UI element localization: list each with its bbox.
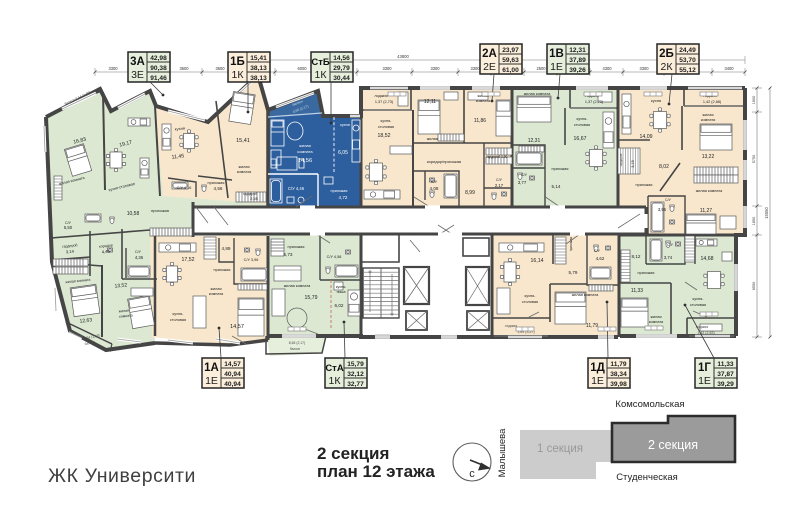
svg-text:12,11: 12,11 (424, 99, 436, 105)
svg-text:1К: 1К (232, 69, 245, 81)
svg-text:с: с (469, 468, 475, 480)
svg-text:гардероб 1,90: гардероб 1,90 (487, 155, 508, 159)
svg-text:12,31: 12,31 (528, 138, 541, 144)
svg-text:4,62: 4,62 (596, 256, 605, 261)
svg-text:комната: комната (701, 118, 716, 122)
svg-text:кухня: кухня (175, 125, 186, 131)
svg-text:8,12: 8,12 (632, 254, 641, 259)
svg-text:11,86: 11,86 (474, 118, 486, 124)
svg-text:жилая: жилая (210, 287, 221, 291)
svg-text:37,89: 37,89 (569, 57, 586, 64)
svg-text:Студенческая: Студенческая (616, 472, 678, 483)
svg-text:32,77: 32,77 (347, 381, 364, 388)
svg-text:комната: комната (649, 320, 664, 324)
svg-text:1,42 (2,68): 1,42 (2,68) (703, 100, 722, 104)
svg-text:С/У 4,46: С/У 4,46 (288, 186, 305, 191)
svg-text:5,14: 5,14 (552, 184, 561, 189)
svg-text:4,89: 4,89 (222, 246, 231, 251)
svg-text:кухня-: кухня- (577, 117, 589, 121)
svg-text:кухня-: кухня- (173, 312, 185, 316)
svg-text:3300: 3300 (470, 66, 480, 71)
svg-text:2К: 2К (661, 61, 674, 73)
svg-text:3600: 3600 (215, 66, 225, 71)
svg-text:38,34: 38,34 (610, 371, 627, 378)
svg-text:91,46: 91,46 (150, 75, 167, 82)
svg-text:1Е: 1Е (591, 375, 604, 387)
svg-text:прихожая: прихожая (552, 167, 569, 171)
svg-text:лоджия: лоджия (374, 94, 387, 98)
svg-text:прихожая: прихожая (569, 237, 573, 251)
svg-text:15550: 15550 (764, 207, 769, 219)
svg-text:23,97: 23,97 (502, 47, 519, 54)
svg-text:прихожая: прихожая (288, 245, 305, 249)
svg-text:3А: 3А (130, 56, 145, 68)
svg-text:8,65 (2,17): 8,65 (2,17) (289, 341, 305, 345)
svg-text:39,29: 39,29 (717, 381, 734, 388)
svg-text:11,27: 11,27 (700, 208, 712, 214)
svg-text:11,33: 11,33 (631, 288, 643, 294)
svg-text:24,49: 24,49 (679, 47, 696, 54)
svg-text:столовая: столовая (522, 300, 538, 304)
svg-text:37,87: 37,87 (717, 371, 734, 378)
svg-text:3300: 3300 (639, 66, 649, 71)
svg-text:39,26: 39,26 (569, 67, 586, 74)
svg-text:прихожая: прихожая (214, 268, 231, 272)
svg-text:1600: 1600 (752, 96, 756, 104)
svg-text:Комсомольская: Комсомольская (615, 399, 684, 410)
svg-text:комната: комната (209, 292, 224, 296)
svg-text:1,37 (2,73): 1,37 (2,73) (585, 100, 604, 104)
svg-text:4,56: 4,56 (214, 186, 223, 191)
svg-text:8,99: 8,99 (465, 190, 475, 196)
svg-text:14,56: 14,56 (333, 55, 350, 62)
svg-text:3,14: 3,14 (66, 249, 75, 255)
svg-text:кухня: кухня (651, 98, 661, 103)
svg-text:жилая: жилая (299, 143, 311, 148)
svg-text:4,36: 4,36 (135, 255, 144, 260)
svg-text:14,09: 14,09 (640, 134, 653, 140)
svg-text:кухня-: кухня- (693, 297, 705, 301)
svg-text:столовая: столовая (378, 125, 394, 129)
svg-text:1А: 1А (204, 362, 219, 374)
svg-text:53,70: 53,70 (679, 57, 696, 64)
svg-text:38,13: 38,13 (250, 75, 267, 82)
svg-text:40,94: 40,94 (224, 371, 241, 378)
svg-text:2 секция: 2 секция (648, 438, 698, 452)
svg-text:5750: 5750 (752, 155, 756, 163)
svg-text:коридор/прихожая: коридор/прихожая (427, 159, 461, 164)
svg-text:3,95: 3,95 (658, 207, 667, 212)
svg-text:жилая комната: жилая комната (572, 293, 599, 297)
svg-text:2 секция: 2 секция (317, 444, 389, 463)
svg-text:С/У: С/У (521, 173, 528, 177)
svg-text:5,79: 5,79 (569, 270, 578, 275)
svg-text:18,52: 18,52 (378, 133, 391, 139)
svg-text:3300: 3300 (430, 66, 440, 71)
svg-text:лоджия: лоджия (505, 324, 518, 328)
svg-text:15,41: 15,41 (236, 138, 250, 144)
svg-text:11,79: 11,79 (586, 323, 598, 329)
svg-text:3,77: 3,77 (518, 180, 527, 185)
svg-text:прихожая: прихожая (331, 189, 348, 193)
svg-text:1 секция: 1 секция (537, 443, 583, 455)
svg-text:прихожая: прихожая (636, 183, 653, 187)
svg-text:прихожая: прихожая (151, 208, 169, 213)
svg-text:С/У: С/У (665, 198, 672, 202)
svg-text:2,55: 2,55 (250, 196, 259, 201)
svg-text:кухня-: кухня- (336, 285, 347, 289)
svg-text:жилая комната: жилая комната (284, 284, 311, 288)
svg-text:29,79: 29,79 (333, 65, 350, 72)
svg-text:4300: 4300 (602, 66, 612, 71)
svg-text:ЖК Университи: ЖК Университи (48, 465, 196, 487)
svg-text:39,98: 39,98 (610, 381, 627, 388)
svg-text:4,45: 4,45 (102, 249, 111, 255)
svg-text:32,12: 32,12 (347, 371, 364, 378)
svg-text:38,13: 38,13 (250, 65, 267, 72)
svg-text:кухня-: кухня- (381, 119, 393, 123)
svg-text:столовая: столовая (690, 303, 706, 307)
svg-text:15,79: 15,79 (347, 361, 364, 368)
svg-text:5,73: 5,73 (284, 252, 293, 257)
svg-text:12,31: 12,31 (569, 47, 586, 54)
svg-text:30,44: 30,44 (333, 75, 350, 82)
svg-text:8,02: 8,02 (659, 164, 669, 170)
svg-text:13,22: 13,22 (702, 154, 715, 160)
svg-text:С/У 3,96: С/У 3,96 (244, 258, 259, 262)
svg-text:6550: 6550 (752, 282, 756, 290)
svg-text:гардероб: гардероб (619, 153, 623, 166)
svg-text:жилая комната: жилая комната (696, 189, 723, 193)
svg-text:3600: 3600 (179, 66, 189, 71)
svg-text:комната: комната (297, 149, 313, 154)
svg-text:прихожая: прихожая (208, 181, 225, 185)
svg-text:кухня: кухня (340, 123, 350, 127)
svg-text:С/У: С/У (496, 178, 503, 182)
svg-text:1Е: 1Е (205, 375, 218, 387)
svg-text:2,17: 2,17 (495, 183, 504, 188)
svg-text:балкон: балкон (290, 347, 301, 351)
svg-text:1К: 1К (329, 375, 342, 387)
svg-text:1Е: 1Е (698, 375, 711, 387)
svg-text:55,12: 55,12 (679, 67, 696, 74)
svg-text:3Е: 3Е (131, 69, 144, 81)
svg-text:столовая: столовая (170, 318, 186, 322)
svg-text:жилая комната: жилая комната (524, 92, 551, 96)
svg-text:5,50: 5,50 (64, 225, 73, 230)
svg-text:2500: 2500 (536, 66, 546, 71)
svg-text:2Б: 2Б (659, 48, 674, 60)
svg-text:6,02: 6,02 (335, 303, 344, 308)
svg-text:комната: комната (476, 99, 491, 103)
svg-text:2А: 2А (482, 48, 497, 60)
svg-text:15,41: 15,41 (250, 55, 267, 62)
svg-text:кухня-: кухня- (525, 294, 537, 298)
svg-text:жилая: жилая (702, 113, 713, 117)
svg-text:15,79: 15,79 (305, 295, 318, 301)
svg-text:1Б: 1Б (230, 56, 245, 68)
svg-text:59,63: 59,63 (502, 57, 519, 64)
svg-text:14,56: 14,56 (298, 158, 313, 164)
svg-text:11,79: 11,79 (610, 361, 626, 368)
svg-text:3300: 3300 (382, 66, 392, 71)
svg-text:4,72: 4,72 (339, 195, 348, 200)
svg-text:прихожая: прихожая (638, 271, 655, 275)
svg-text:16,14: 16,14 (531, 258, 544, 264)
svg-text:1К: 1К (315, 69, 328, 81)
svg-text:6,05: 6,05 (338, 150, 348, 156)
svg-text:1,37 (2,73): 1,37 (2,73) (375, 100, 394, 104)
svg-text:С/У: С/У (135, 250, 142, 254)
svg-text:17,52: 17,52 (182, 257, 195, 263)
svg-text:С/У 4,58: С/У 4,58 (327, 255, 342, 259)
svg-text:11,33: 11,33 (717, 361, 733, 368)
svg-text:4,08: 4,08 (430, 186, 439, 191)
svg-text:2Е: 2Е (483, 61, 496, 73)
svg-text:1Г: 1Г (698, 362, 711, 374)
svg-text:14,57: 14,57 (224, 361, 241, 368)
svg-text:С/У: С/У (667, 243, 674, 247)
svg-text:3,15: 3,15 (631, 160, 635, 167)
svg-text:14,68: 14,68 (701, 256, 714, 262)
svg-text:3300: 3300 (108, 66, 118, 71)
svg-text:С/У: С/У (431, 180, 438, 184)
svg-text:1850: 1850 (752, 217, 756, 225)
svg-text:14,57: 14,57 (230, 324, 244, 330)
svg-text:3,74: 3,74 (664, 255, 673, 260)
svg-text:3400: 3400 (724, 66, 734, 71)
svg-text:комната: комната (237, 170, 252, 174)
svg-text:жилая: жилая (650, 315, 661, 319)
svg-text:С/У 4,16: С/У 4,16 (177, 186, 192, 190)
svg-text:жилая: жилая (238, 165, 249, 169)
svg-text:16,67: 16,67 (574, 136, 587, 142)
svg-text:С/У: С/У (594, 249, 601, 253)
svg-text:42,98: 42,98 (150, 55, 167, 62)
svg-text:43800: 43800 (397, 54, 409, 59)
svg-text:Малышева: Малышева (497, 428, 508, 478)
svg-text:СтА: СтА (325, 363, 344, 374)
svg-text:ниша: ниша (337, 290, 346, 294)
svg-text:1В: 1В (549, 48, 564, 60)
svg-text:1Д: 1Д (590, 362, 605, 374)
svg-text:6000: 6000 (297, 66, 307, 71)
svg-text:план 12 этажа: план 12 этажа (317, 462, 435, 481)
svg-text:61,00: 61,00 (502, 67, 519, 74)
svg-text:90,38: 90,38 (150, 65, 167, 72)
svg-text:10,58: 10,58 (127, 211, 140, 217)
svg-text:40,94: 40,94 (224, 381, 241, 388)
svg-text:столовая: столовая (574, 123, 590, 127)
svg-text:1Е: 1Е (550, 61, 563, 73)
svg-text:СтБ: СтБ (311, 57, 330, 68)
